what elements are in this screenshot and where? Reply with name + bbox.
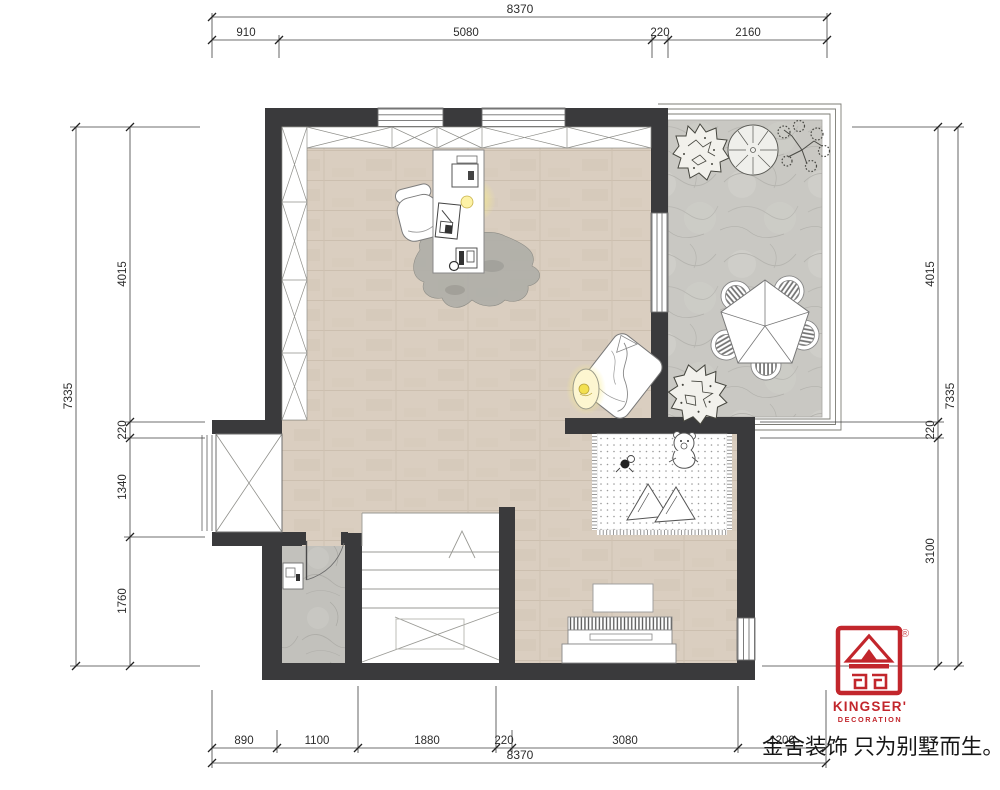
desk-printer — [452, 164, 478, 187]
dim-right-seg: 3100 — [925, 538, 937, 564]
dim-top-seg: 5080 — [453, 27, 479, 39]
elevator-door-lines — [202, 435, 212, 531]
dim-left-seg: 1760 — [117, 588, 129, 614]
window-top-1 — [378, 108, 443, 127]
wall-elevator-top — [212, 420, 282, 434]
wall-stair-right — [499, 507, 515, 663]
dimension-ticks — [72, 123, 134, 670]
dim-right-seg: 220 — [925, 420, 937, 439]
dim-bottom-seg: 3080 — [612, 735, 638, 747]
wall-top-mid — [443, 108, 482, 127]
dim-top-seg: 220 — [650, 27, 669, 39]
wall-bath-left — [262, 546, 282, 663]
dim-left-total: 7335 — [61, 382, 75, 409]
wall-bath-right — [345, 533, 362, 663]
cabinet-left-column — [282, 127, 307, 420]
logo-subtitle: DECORATION — [838, 715, 903, 724]
dim-top-seg: 910 — [236, 27, 255, 39]
wall-elevator-bottom — [212, 532, 282, 546]
dim-top-seg: 2160 — [735, 27, 761, 39]
wall-left — [265, 108, 282, 420]
floor-plan-document: 8370 910 5080 220 2160 890 1100 1880 220… — [0, 0, 1000, 790]
door-jamb-right — [341, 532, 348, 545]
wall-bedroom-corner — [737, 660, 755, 680]
desk-laptop — [435, 203, 460, 239]
cabinet-top-row — [282, 127, 651, 148]
round-tree — [728, 125, 778, 175]
mat-fringe-left — [592, 434, 597, 530]
logo-glyph — [847, 636, 891, 688]
dim-left-seg: 220 — [117, 420, 129, 439]
bedroom-table — [593, 584, 653, 612]
mat-fringe-right — [727, 434, 732, 530]
window-top-2 — [482, 108, 565, 127]
floor-lamp — [566, 363, 606, 415]
elevator-shaft — [202, 434, 282, 532]
dim-bottom-seg: 890 — [234, 735, 253, 747]
wall-terrace-left-upper — [651, 108, 668, 213]
floor-plan-canvas: 8370 910 5080 220 2160 890 1100 1880 220… — [0, 0, 1000, 790]
dim-top-total: 8370 — [507, 2, 534, 16]
dim-right-seg: 4015 — [925, 261, 937, 287]
dim-left-seg: 4015 — [117, 261, 129, 287]
dim-bottom-seg: 220 — [494, 735, 513, 747]
dim-left-seg: 1340 — [117, 474, 129, 500]
wall-bottom — [262, 663, 755, 680]
window-terrace-wall — [651, 213, 668, 312]
dimension-left — [70, 123, 205, 670]
dim-right-total: 7335 — [943, 382, 957, 409]
desk-shelf-item — [457, 156, 477, 163]
dim-bottom-total: 8370 — [507, 748, 534, 762]
door-jamb-left — [299, 532, 306, 545]
bathroom-washer — [283, 563, 303, 589]
registered-mark: ® — [901, 628, 909, 640]
window-bedroom-right — [737, 618, 755, 660]
mat-fringe-bottom — [597, 530, 727, 535]
kids-play-mat — [592, 432, 732, 536]
kingser-logo: ® KINGSER' DECORATION — [833, 628, 909, 724]
wall-bedroom-right — [737, 418, 755, 618]
dim-bottom-seg: 1880 — [414, 735, 440, 747]
slogan-text: 金舍装饰 只为别墅而生。 — [762, 735, 1000, 759]
desk-lamp — [461, 196, 473, 208]
logo-title: KINGSER' — [833, 699, 907, 714]
stair-floor — [362, 513, 499, 663]
dim-bottom-seg: 1100 — [305, 735, 330, 747]
